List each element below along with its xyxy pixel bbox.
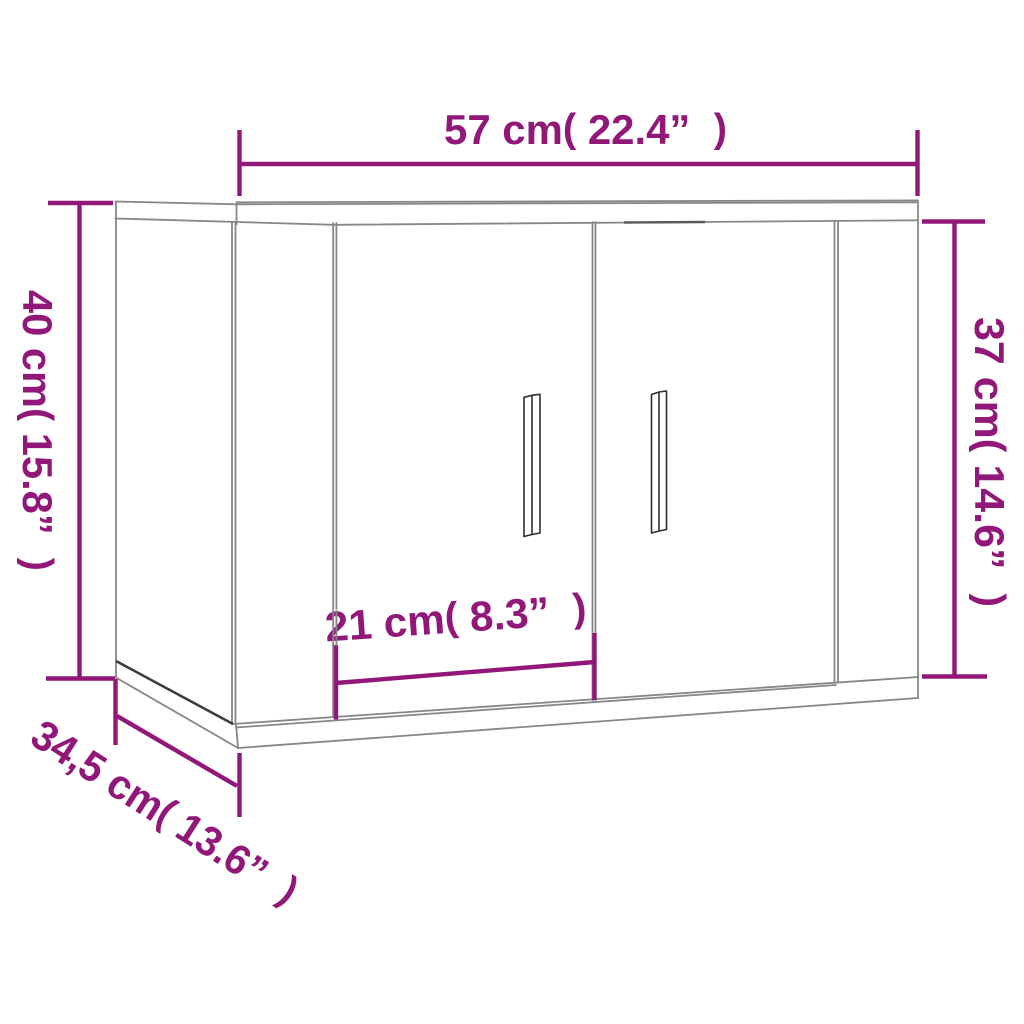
svg-text:57 cm( 22.4” ): 57 cm( 22.4” ): [444, 106, 727, 153]
svg-text:34,5 cm( 13.6” ): 34,5 cm( 13.6” ): [23, 710, 306, 914]
svg-text:37 cm( 14.6” ): 37 cm( 14.6” ): [966, 317, 1013, 607]
svg-text:21 cm( 8.3” ): 21 cm( 8.3” ): [323, 585, 588, 650]
svg-text:40 cm( 15.8” ): 40 cm( 15.8” ): [14, 290, 61, 571]
